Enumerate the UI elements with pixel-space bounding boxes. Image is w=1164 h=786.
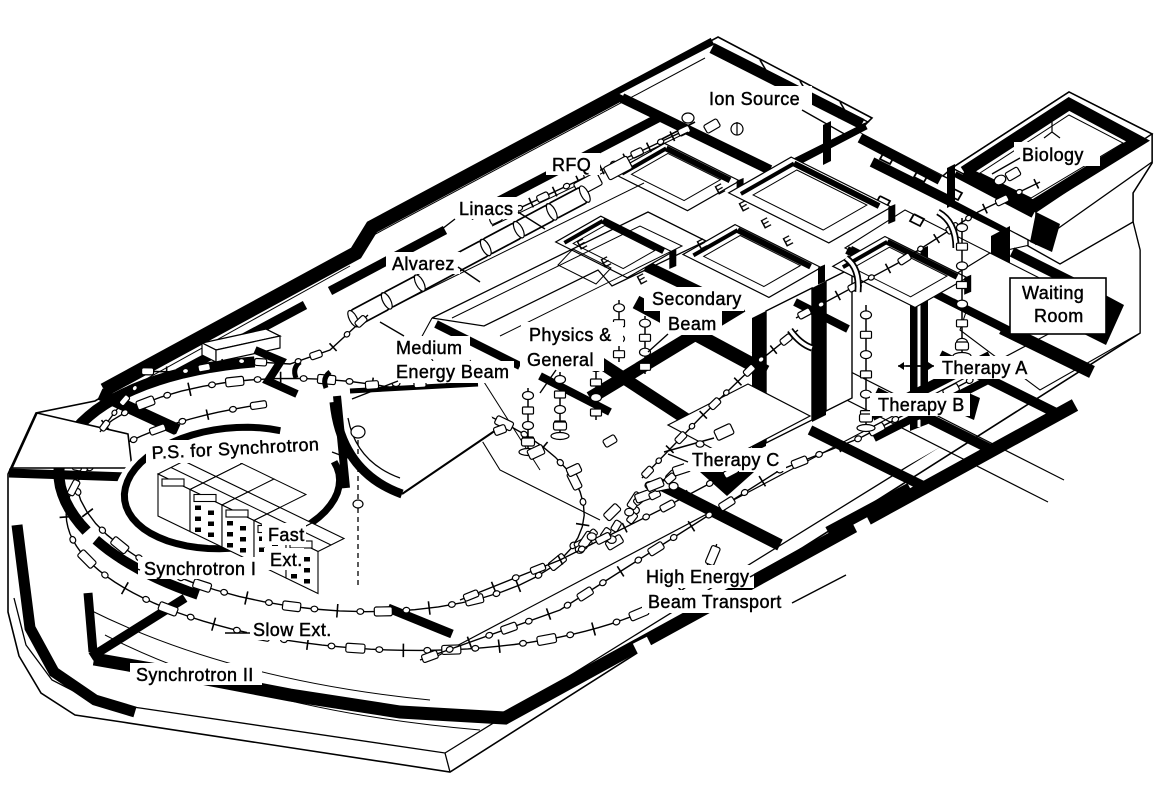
- svg-text:Biology: Biology: [1022, 145, 1084, 165]
- svg-text:High Energy: High Energy: [646, 567, 749, 587]
- svg-text:Medium: Medium: [396, 338, 462, 358]
- svg-text:Waiting: Waiting: [1022, 283, 1084, 303]
- svg-text:Energy Beam: Energy Beam: [396, 362, 509, 382]
- svg-text:Slow Ext.: Slow Ext.: [253, 620, 332, 640]
- svg-text:Beam: Beam: [668, 314, 717, 334]
- svg-text:Therapy C: Therapy C: [692, 450, 780, 470]
- svg-text:Therapy A: Therapy A: [942, 358, 1028, 378]
- svg-text:Therapy B: Therapy B: [878, 395, 965, 415]
- svg-text:Room: Room: [1034, 306, 1084, 326]
- svg-text:Fast: Fast: [268, 525, 305, 545]
- svg-text:Synchrotron I: Synchrotron I: [144, 559, 256, 579]
- svg-text:Linacs: Linacs: [459, 199, 513, 219]
- svg-text:Ion Source: Ion Source: [709, 89, 800, 109]
- svg-text:Alvarez: Alvarez: [392, 254, 455, 274]
- svg-text:Beam Transport: Beam Transport: [648, 592, 782, 612]
- svg-text:Secondary: Secondary: [652, 289, 742, 309]
- svg-text:Synchrotron II: Synchrotron II: [136, 665, 254, 685]
- svg-text:General: General: [527, 350, 594, 370]
- svg-text:Physics &: Physics &: [529, 325, 612, 345]
- svg-text:Ext.: Ext.: [270, 550, 303, 570]
- svg-text:RFQ: RFQ: [552, 155, 591, 175]
